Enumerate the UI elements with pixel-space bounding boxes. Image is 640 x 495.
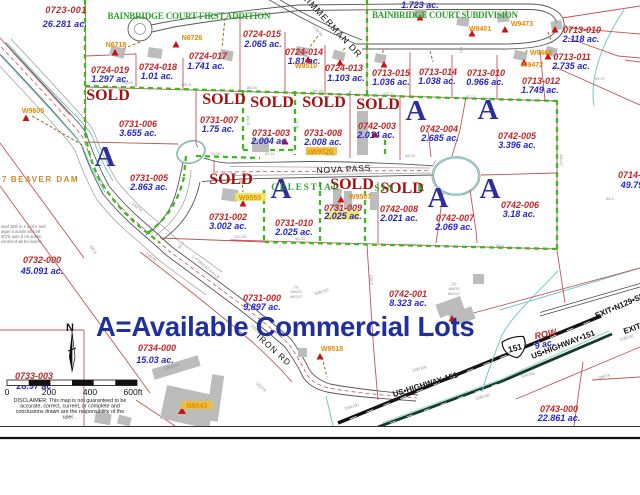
svg-text:2.685 ac.: 2.685 ac. xyxy=(420,133,459,143)
svg-text:W9605: W9605 xyxy=(22,108,44,115)
svg-text:W9401: W9401 xyxy=(469,26,491,33)
svg-text:1.749 ac.: 1.749 ac. xyxy=(521,85,559,95)
svg-text:7: 7 xyxy=(2,175,7,184)
svg-text:BEAVER DAM: BEAVER DAM xyxy=(11,175,79,184)
svg-text:N6718: N6718 xyxy=(106,42,127,49)
svg-text:2.021 ac.: 2.021 ac. xyxy=(379,213,418,223)
svg-text:0: 0 xyxy=(5,387,10,397)
svg-text:90.00: 90.00 xyxy=(325,152,336,157)
svg-text:2.014 ac.: 2.014 ac. xyxy=(356,130,395,140)
svg-text:CELESTIAL: CELESTIAL xyxy=(271,182,341,192)
svg-text:W9555: W9555 xyxy=(239,195,261,202)
svg-text:46/247: 46/247 xyxy=(290,294,303,299)
svg-text:120.5: 120.5 xyxy=(181,82,192,87)
svg-text:2.069 ac.: 2.069 ac. xyxy=(434,222,473,232)
svg-text:120.00: 120.00 xyxy=(234,234,247,239)
svg-text:W9473: W9473 xyxy=(511,21,533,28)
svg-text:BAINBRIDGE COURT FIRST ADDITIO: BAINBRIDGE COURT FIRST ADDITION xyxy=(108,11,273,21)
svg-text:A: A xyxy=(428,182,449,214)
svg-text:central d ab bo livores: central d ab bo livores xyxy=(1,239,42,244)
svg-text:8.323 ac.: 8.323 ac. xyxy=(389,298,427,308)
svg-text:400: 400 xyxy=(83,387,97,397)
svg-text:BAINBRIDGE COURT SUBDIVISION: BAINBRIDGE COURT SUBDIVISION xyxy=(372,10,520,20)
svg-text:1.036 ac.: 1.036 ac. xyxy=(372,77,410,87)
svg-text:W9507: W9507 xyxy=(349,194,371,201)
svg-text:SOLD: SOLD xyxy=(202,91,246,108)
svg-text:3.396 ac.: 3.396 ac. xyxy=(498,140,536,150)
svg-text:0732-000: 0732-000 xyxy=(23,255,61,265)
svg-text:95.07: 95.07 xyxy=(595,76,606,81)
svg-text:A: A xyxy=(95,141,116,173)
svg-text:98.00: 98.00 xyxy=(123,80,134,85)
svg-text:2.025 ac.: 2.025 ac. xyxy=(323,211,362,221)
svg-text:W9510: W9510 xyxy=(295,63,317,70)
svg-text:88.00: 88.00 xyxy=(247,85,258,90)
svg-text:110.0: 110.0 xyxy=(383,91,393,96)
svg-text:0724-015: 0724-015 xyxy=(243,29,282,39)
svg-text:SOLD: SOLD xyxy=(86,87,130,104)
svg-text:1.01 ac.: 1.01 ac. xyxy=(141,71,174,81)
svg-text:SIN: SIN xyxy=(374,183,395,193)
svg-text:132.00: 132.00 xyxy=(404,242,417,247)
svg-text:66/247: 66/247 xyxy=(448,291,461,296)
svg-text:75.00: 75.00 xyxy=(210,151,221,156)
svg-text:K: K xyxy=(417,183,426,193)
svg-text:182.5: 182.5 xyxy=(246,115,251,126)
svg-text:1.741 ac.: 1.741 ac. xyxy=(187,61,225,71)
svg-text:SOLD: SOLD xyxy=(250,94,294,111)
svg-text:82.11: 82.11 xyxy=(265,151,275,156)
svg-text:2.025 ac.: 2.025 ac. xyxy=(274,227,313,237)
svg-text:49.79: 49.79 xyxy=(620,180,640,190)
svg-text:2.863 ac.: 2.863 ac. xyxy=(129,182,168,192)
svg-text:45.091 ac.: 45.091 ac. xyxy=(20,266,64,276)
svg-text:0724-013: 0724-013 xyxy=(325,63,363,73)
svg-text:55.3: 55.3 xyxy=(606,196,615,201)
svg-text:132: 132 xyxy=(459,47,464,54)
svg-text:165: 165 xyxy=(199,57,204,64)
svg-text:0723-001: 0723-001 xyxy=(45,5,86,15)
svg-text:22.861 ac.: 22.861 ac. xyxy=(537,413,581,423)
svg-text:2.008 ac.: 2.008 ac. xyxy=(303,137,342,147)
svg-text:0714-0: 0714-0 xyxy=(618,170,640,180)
svg-text:3.18 ac.: 3.18 ac. xyxy=(503,209,536,219)
svg-text:88.0: 88.0 xyxy=(496,243,505,248)
svg-text:N6543: N6543 xyxy=(187,403,208,410)
svg-text:0733-003: 0733-003 xyxy=(15,371,53,381)
svg-text:W9472: W9472 xyxy=(521,62,543,69)
svg-text:26.281 ac.: 26.281 ac. xyxy=(42,19,88,29)
svg-text:2.118 ac.: 2.118 ac. xyxy=(562,34,600,44)
svg-text:2.065 ac.: 2.065 ac. xyxy=(243,39,282,49)
svg-text:340.07: 340.07 xyxy=(559,154,564,167)
svg-text:600ft: 600ft xyxy=(124,387,144,397)
svg-text:1.103 ac.: 1.103 ac. xyxy=(327,73,365,83)
svg-text:3.002 ac.: 3.002 ac. xyxy=(209,221,247,231)
svg-text:0.966 ac.: 0.966 ac. xyxy=(466,77,504,87)
svg-text:W9468: W9468 xyxy=(530,50,552,57)
svg-text:N6726: N6726 xyxy=(182,35,203,42)
svg-text:2.004 ac.: 2.004 ac. xyxy=(250,136,289,146)
svg-text:A=Available Commercial Lots: A=Available Commercial Lots xyxy=(96,311,474,342)
svg-text:3.655 ac.: 3.655 ac. xyxy=(119,128,157,138)
svg-text:1.75 ac.: 1.75 ac. xyxy=(202,124,235,134)
svg-text:A: A xyxy=(478,94,499,126)
svg-text:88.02: 88.02 xyxy=(405,153,416,158)
svg-text:0724-017: 0724-017 xyxy=(189,51,228,61)
svg-text:2.735 ac.: 2.735 ac. xyxy=(551,61,590,71)
svg-text:0734-000: 0734-000 xyxy=(138,343,176,353)
svg-text:215.0: 215.0 xyxy=(369,275,375,286)
svg-text:SOLD: SOLD xyxy=(302,94,346,111)
svg-text:1.038 ac.: 1.038 ac. xyxy=(418,76,456,86)
svg-text:W9518: W9518 xyxy=(321,346,343,353)
svg-text:200: 200 xyxy=(42,387,56,397)
svg-text:SOLD: SOLD xyxy=(356,96,400,113)
svg-text:15.03 ac.: 15.03 ac. xyxy=(136,355,174,365)
svg-text:102.3: 102.3 xyxy=(465,94,476,99)
svg-text:178: 178 xyxy=(295,122,300,129)
svg-text:N: N xyxy=(66,322,74,334)
svg-text:A: A xyxy=(406,95,427,127)
svg-text:95.25: 95.25 xyxy=(313,88,324,93)
svg-text:98.00: 98.00 xyxy=(295,236,306,241)
svg-text:user. .: user. . xyxy=(63,415,77,421)
svg-text:SOLD: SOLD xyxy=(209,171,253,188)
svg-text:1.723 ac.: 1.723 ac. xyxy=(401,0,439,10)
svg-text:A: A xyxy=(480,173,501,205)
